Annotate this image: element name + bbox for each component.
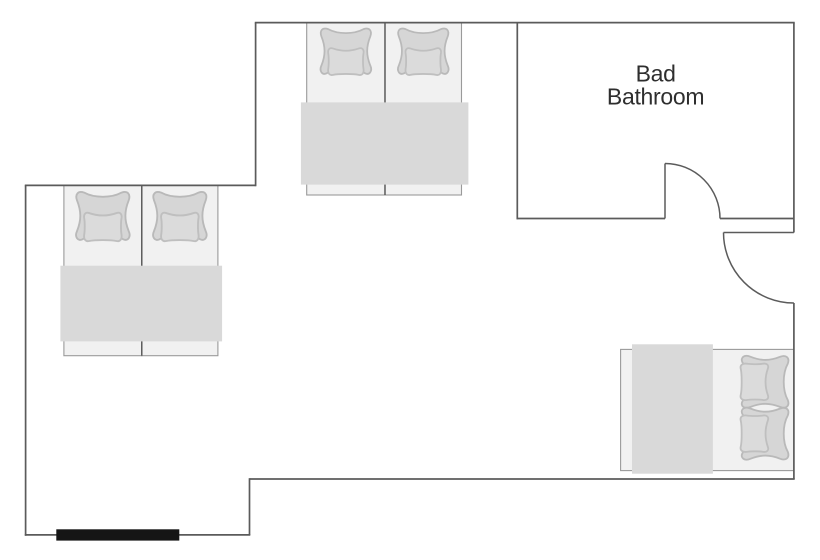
svg-text:Bathroom: Bathroom (607, 84, 704, 110)
